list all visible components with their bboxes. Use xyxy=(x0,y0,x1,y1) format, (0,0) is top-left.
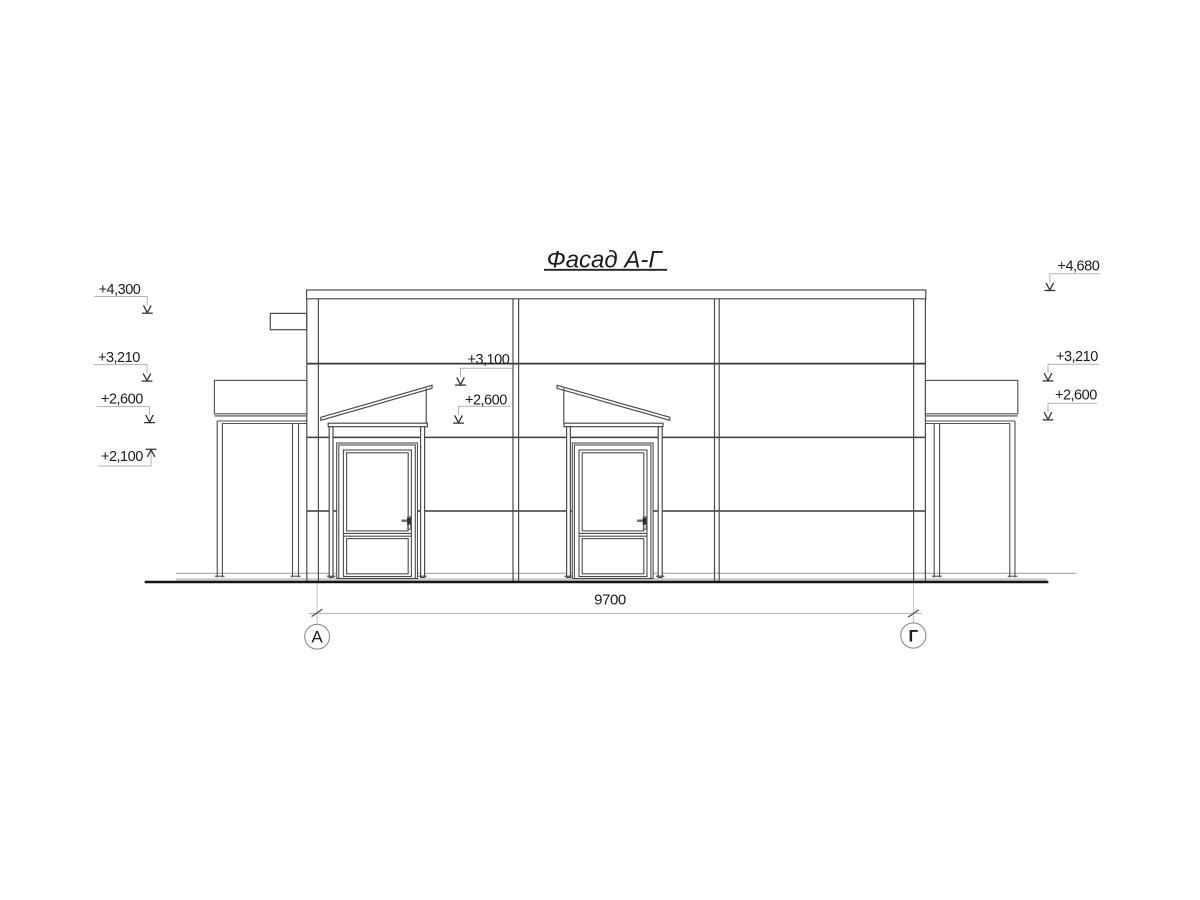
svg-text:+3,210: +3,210 xyxy=(1056,349,1098,365)
svg-text:+2,600: +2,600 xyxy=(465,393,507,409)
svg-text:+4,300: +4,300 xyxy=(99,282,141,298)
svg-text:+2,100: +2,100 xyxy=(101,449,143,465)
svg-text:+4,680: +4,680 xyxy=(1058,258,1100,274)
svg-text:+2,600: +2,600 xyxy=(1055,387,1097,403)
svg-text:9700: 9700 xyxy=(594,591,626,608)
svg-text:+2,600: +2,600 xyxy=(101,391,143,407)
svg-text:Г: Г xyxy=(908,626,918,645)
svg-text:А: А xyxy=(311,628,323,647)
svg-text:+3,100: +3,100 xyxy=(468,352,510,368)
svg-text:+3,210: +3,210 xyxy=(98,350,140,366)
